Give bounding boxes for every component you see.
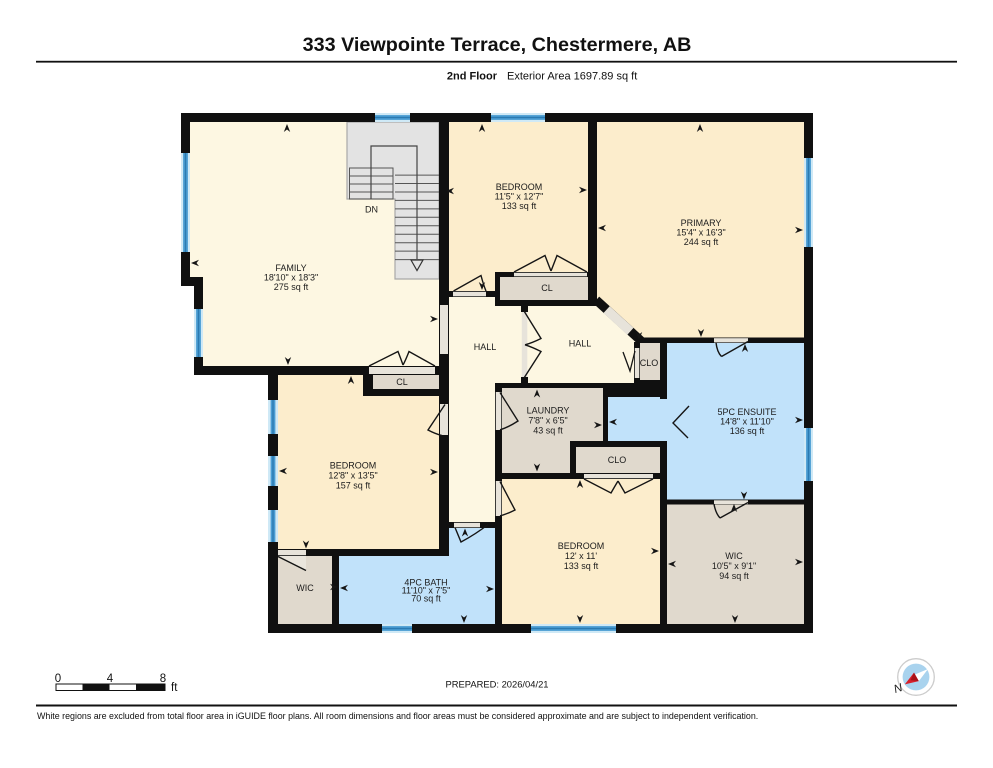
- svg-text:PREPARED: 2026/04/21: PREPARED: 2026/04/21: [445, 679, 548, 690]
- svg-text:11'5" x 12'7": 11'5" x 12'7": [495, 192, 544, 202]
- svg-text:CL: CL: [396, 377, 408, 387]
- svg-text:2nd Floor: 2nd Floor: [447, 71, 498, 83]
- svg-text:5PC ENSUITE: 5PC ENSUITE: [717, 407, 776, 417]
- svg-text:8: 8: [160, 673, 166, 685]
- svg-text:BEDROOM: BEDROOM: [496, 182, 543, 192]
- svg-text:Exterior Area 1697.89 sq ft: Exterior Area 1697.89 sq ft: [507, 71, 637, 83]
- svg-text:White regions are excluded fro: White regions are excluded from total fl…: [37, 711, 758, 721]
- svg-text:133 sq ft: 133 sq ft: [502, 201, 537, 211]
- svg-text:WIC: WIC: [296, 583, 314, 593]
- svg-text:14'8" x 11'10": 14'8" x 11'10": [720, 417, 774, 427]
- svg-text:BEDROOM: BEDROOM: [558, 541, 605, 551]
- svg-text:HALL: HALL: [474, 342, 497, 352]
- svg-text:0: 0: [55, 673, 61, 685]
- svg-text:CLO: CLO: [608, 455, 627, 465]
- svg-text:BEDROOM: BEDROOM: [330, 461, 377, 471]
- svg-text:15'4" x 16'3": 15'4" x 16'3": [676, 228, 725, 238]
- svg-text:333 Viewpointe Terrace, Cheste: 333 Viewpointe Terrace, Chestermere, AB: [303, 34, 692, 56]
- svg-text:FAMILY: FAMILY: [275, 263, 306, 273]
- svg-text:DN: DN: [365, 205, 378, 215]
- svg-text:136 sq ft: 136 sq ft: [730, 426, 765, 436]
- svg-text:94 sq ft: 94 sq ft: [719, 571, 749, 581]
- svg-text:157 sq ft: 157 sq ft: [336, 481, 371, 491]
- svg-text:275 sq ft: 275 sq ft: [274, 282, 309, 292]
- svg-text:18'10" x 18'3": 18'10" x 18'3": [264, 273, 318, 283]
- svg-text:4: 4: [107, 673, 114, 685]
- svg-text:244 sq ft: 244 sq ft: [684, 237, 719, 247]
- svg-text:12' x 11': 12' x 11': [565, 551, 598, 561]
- svg-text:ft: ft: [171, 682, 178, 694]
- svg-text:7'8" x 6'5": 7'8" x 6'5": [528, 416, 567, 426]
- svg-text:43 sq ft: 43 sq ft: [533, 426, 563, 436]
- svg-text:10'5" x 9'1": 10'5" x 9'1": [712, 561, 756, 571]
- svg-text:WIC: WIC: [725, 551, 743, 561]
- svg-text:CL: CL: [541, 283, 553, 293]
- svg-text:HALL: HALL: [569, 339, 592, 349]
- svg-text:LAUNDRY: LAUNDRY: [527, 406, 570, 416]
- svg-text:CLO: CLO: [640, 358, 659, 368]
- svg-text:PRIMARY: PRIMARY: [681, 218, 722, 228]
- svg-text:133 sq ft: 133 sq ft: [564, 561, 599, 571]
- svg-text:70 sq ft: 70 sq ft: [411, 594, 441, 604]
- svg-text:12'8" x 13'5": 12'8" x 13'5": [328, 471, 377, 481]
